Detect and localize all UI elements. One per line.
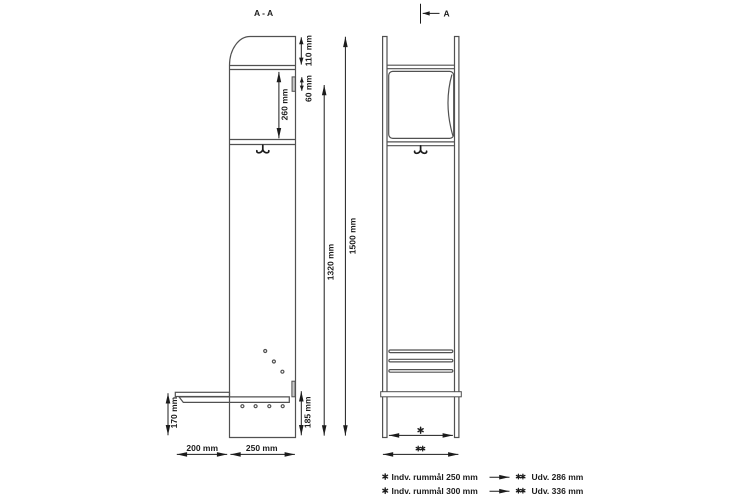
svg-text:Indv. rummål 300 mm: Indv. rummål 300 mm	[392, 486, 479, 496]
svg-text:200 mm: 200 mm	[186, 443, 218, 453]
svg-text:185 mm: 185 mm	[302, 396, 312, 428]
svg-text:Indv. rummål 250 mm: Indv. rummål 250 mm	[392, 472, 479, 482]
svg-text:260 mm: 260 mm	[279, 88, 289, 120]
svg-text:A: A	[444, 9, 450, 19]
svg-text:1320 mm: 1320 mm	[325, 243, 335, 280]
svg-text:1500 mm: 1500 mm	[347, 217, 357, 254]
svg-text:A - A: A - A	[254, 8, 273, 18]
svg-text:Udv. 336 mm: Udv. 336 mm	[532, 486, 584, 496]
svg-text:250 mm: 250 mm	[246, 443, 278, 453]
svg-text:110 mm: 110 mm	[304, 35, 314, 67]
svg-text:170 mm: 170 mm	[169, 396, 179, 428]
svg-text:Udv. 286 mm: Udv. 286 mm	[532, 472, 584, 482]
svg-text:60 mm: 60 mm	[304, 75, 314, 102]
